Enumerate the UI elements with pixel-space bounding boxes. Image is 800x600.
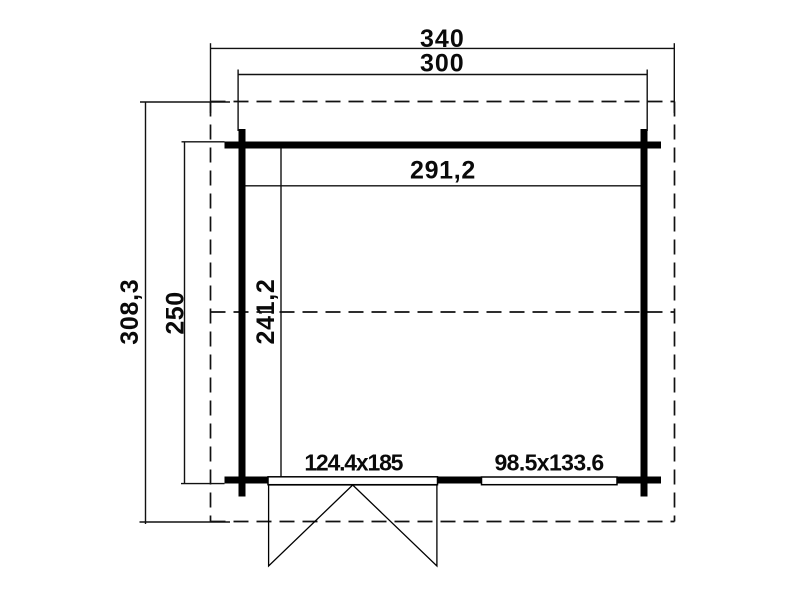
svg-text:291,2: 291,2 (410, 157, 476, 185)
svg-text:308,3: 308,3 (116, 279, 144, 345)
svg-text:241,2: 241,2 (252, 278, 280, 344)
svg-text:124.4x185: 124.4x185 (304, 450, 403, 476)
svg-text:98.5x133.6: 98.5x133.6 (494, 450, 603, 476)
svg-text:250: 250 (162, 291, 190, 334)
svg-text:300: 300 (420, 50, 465, 78)
